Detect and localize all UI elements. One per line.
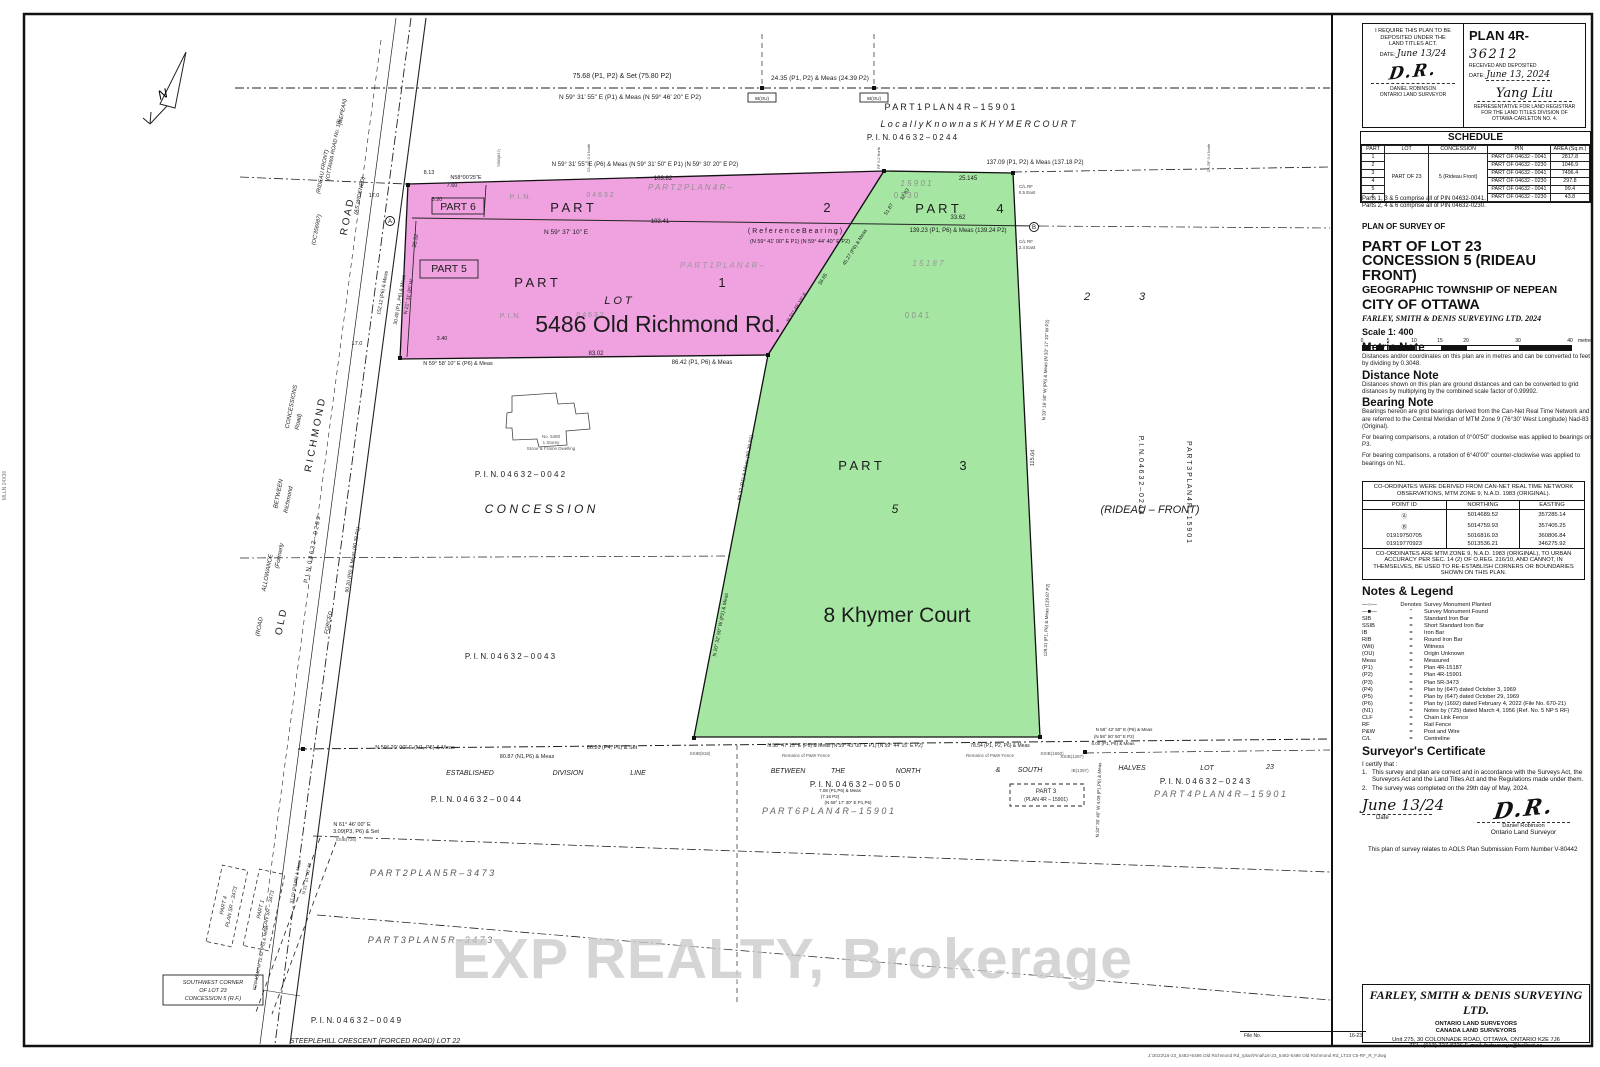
drawing-label: N 59° 37' 10" E (544, 228, 589, 236)
drawing-label: 75.68 (P1, P2) & Set (75.80 P2) (573, 73, 672, 80)
certificate-signer-title: Ontario Land Surveyor (1457, 829, 1590, 836)
legend-entry: (N1)=Notes by (725) dated March 4, 1956 … (1362, 708, 1594, 715)
drawing-label: P. I. N. (510, 194, 531, 201)
deposit-date-value: June 13/24 (1397, 49, 1446, 59)
drawing-label: HALVES (1118, 765, 1146, 772)
drawing-label: 0 4 6 3 2 (586, 192, 613, 199)
drawing-label: ALLOWANCE (261, 553, 274, 593)
legend-entry: —■—"Survey Monument Found (1362, 609, 1594, 616)
legend-entry: RIB=Round Iron Bar (1362, 637, 1594, 644)
coordinate-footer: CO-ORDINATES ARE MTM ZONE 9, N.A.D. 1983… (1363, 548, 1584, 579)
legend-block: Notes & Legend —○—DenotesSurvey Monument… (1362, 584, 1594, 743)
drawing-label: 7.08 (P1,P6) & Meas (819, 788, 862, 793)
drawing-label: 5 (892, 502, 899, 516)
rotated-part-box: PART 4PLAN 5R – 3473 (206, 865, 248, 947)
drawing-label: P A R T 1 P L A N 4 R – 1 5 9 0 1 (884, 102, 1015, 112)
coordinate-row: 019197507055016816.93360806.84 (1363, 532, 1584, 540)
surveyor-title: ONTARIO LAND SURVEYOR (1365, 92, 1461, 98)
legend-entry: IB=Iron Bar (1362, 630, 1594, 637)
drawing-label: OF LOT 23 (199, 988, 227, 994)
drawing-label: 33.62 (950, 215, 966, 221)
drawing-label: 3 (959, 458, 966, 473)
drawing-label: SSIB(918) (690, 751, 711, 756)
distance-note-title: Distance Note (1362, 373, 1592, 380)
received-date-label: DATE: (1469, 73, 1485, 79)
realty-watermark: EXP REALTY, Brokerage (452, 926, 1133, 992)
drawing-label: P. I. N. 0 4 6 3 2 – 0 2 8 9 (304, 515, 323, 583)
legend-entry: (OU)=Origin Unknown (1362, 651, 1594, 658)
drawing-label: RF 0.2 North (877, 147, 881, 169)
distance-note-body: Distances shown on this plan are ground … (1362, 381, 1592, 395)
legend-entry: C/L=Centreline (1362, 736, 1594, 743)
drawing-label: Richmond (283, 485, 294, 513)
drawing-label: N 32° 30' 40" W 4.09 (P1,P6) & Meas (1095, 762, 1103, 838)
drawing-label: N 59° 31' 55" E (P6) & Meas (N 59° 31' 5… (552, 162, 738, 168)
drawing-label: 8 Khymer Court (823, 604, 970, 627)
legend-entry: (Wit)=Witness (1362, 644, 1594, 651)
drawing-label: SOUTH (1018, 767, 1043, 774)
drawing-label: (N 58° 50' 50" E P2) (1094, 734, 1135, 739)
schedule-note: Parts 2, 4 & 6 comprise all of PIN 04632… (1362, 203, 1486, 210)
drawing-label: R O A D (339, 199, 357, 237)
drawing-label: 129.31 (P1, P6) & Meas (129.87 P2) (1043, 583, 1051, 656)
schedule-note: Parts 1, 3 & 5 comprise all of PIN 04632… (1362, 196, 1486, 203)
legend-entry: (P2)=Plan 4R-15901 (1362, 672, 1594, 679)
drawing-label: P A R T (514, 275, 558, 290)
drawing-label: P. I. N. 0 4 6 3 2 – 0 0 4 3 (465, 652, 556, 661)
registrar-signature: Yang Liu (1469, 86, 1580, 101)
drawing-label: Stone & Frame Dwelling (527, 446, 576, 451)
plan-number-prefix: PLAN 4R- (1469, 28, 1529, 43)
survey-monument (301, 747, 305, 751)
drawing-label: 23 (1265, 764, 1274, 771)
legend-entry: (P6)=Plan by (1692) dated February 4, 20… (1362, 701, 1594, 708)
drawing-label: 1 (718, 275, 725, 290)
file-path: J:\2023\16-23_5482+5486 Old Richmond Rd_… (1148, 1053, 1386, 1058)
drawing-label: 0.5 East (1019, 190, 1036, 195)
certificate-item: 1.This survey and plan are correct and i… (1362, 769, 1590, 784)
drawing-label: 2.4 East (1019, 245, 1036, 250)
drawing-label: 86.20 (P4, P6) & Set (587, 745, 638, 751)
plan-number-block: PLAN 4R- 36212 RECEIVED AND DEPOSITED DA… (1464, 24, 1585, 127)
drawing-label: 86.42 (P1, P6) & Meas (672, 360, 733, 366)
legend-entry: SSIB=Short Standard Iron Bar (1362, 623, 1594, 630)
drawing-label: 8.13 (424, 170, 435, 176)
drawing-label: 137.09 (P1, P2) & Meas (137.18 P2) (986, 160, 1083, 166)
certificate-item: 2.The survey was completed on the 29th d… (1362, 785, 1590, 792)
survey-monument (760, 86, 764, 90)
schedule-col-header: CONCESSION (1429, 146, 1488, 154)
drawing-label: P. I. N. 0 4 6 3 2 – 0 0 4 4 (431, 795, 522, 804)
drawing-label: PART 6 (440, 201, 476, 213)
deposit-block: I REQUIRE THIS PLAN TO BE DEPOSITED UNDE… (1362, 23, 1586, 128)
scale-label: Scale 1: 400 (1362, 327, 1588, 337)
drawing-label: P A R T 4 P L A N 4 R – 1 5 9 0 1 (1154, 789, 1286, 799)
drawing-label: Remains of P&W Fence (966, 753, 1015, 758)
drawing-label: 7.60 (447, 183, 458, 189)
schedule-table: SCHEDULE PARTLOTCONCESSIONPINAREA (Sq.m.… (1360, 131, 1591, 203)
deposit-line: DEPOSITED UNDER THE (1365, 35, 1461, 42)
legend-entry: —○—DenotesSurvey Monument Planted (1362, 602, 1594, 609)
drawing-label: IB(OU) (867, 96, 882, 101)
survey-monument (1038, 735, 1042, 739)
drawing-label: STEEPLEHILL CRESCENT (FORCED ROAD) LOT 2… (290, 1038, 460, 1045)
drawing-label: 3.09(P3, P6) & Set (333, 829, 379, 835)
company-subtitle: ONTARIO LAND SURVEYORS (1363, 1021, 1589, 1028)
drawing-label: 80.87 (N1,P6) & Meas (500, 754, 555, 760)
certificate-block: Surveyor's Certificate I certify that : … (1362, 744, 1590, 836)
drawing-label: N 33° 16' 50" W (P6) & Meas (N 33° 17' 1… (1041, 319, 1050, 420)
drawing-label: IB(1397) (1071, 768, 1089, 773)
drawing-label: FORCED (324, 611, 334, 635)
drawing-label: P. I. N. 0 4 6 3 2 – 0 0 4 2 (475, 470, 566, 479)
coordinate-header: CO-ORDINATES WERE DERIVED FROM CAN-NET R… (1363, 482, 1584, 501)
drawing-label: PART 5 (431, 263, 467, 275)
drawing-label: P. I. N. 0 4 6 3 2 – 0 2 4 4 (867, 133, 958, 142)
drawing-label: P A R T 1 P L A N 4 R – (680, 261, 764, 270)
drawing-label: 2 (823, 200, 830, 215)
drawing-label: 5.00 (P1, P6) & Meas (1091, 741, 1135, 746)
drawing-label: ESTABLISHED (446, 770, 494, 777)
drawing-label: P A R T 6 P L A N 4 R – 1 5 9 0 1 (762, 806, 894, 816)
boundary-line (1040, 226, 1330, 228)
drawing-label: SSIB(1287) (1060, 754, 1084, 759)
drawing-label: P A R T (915, 201, 959, 216)
drawing-label: 37.19 (P3,P6) & Meas (289, 859, 302, 904)
drawing-label: 3.40 (437, 336, 448, 342)
drawing-label: N20°16'40"W 12.62 (P6) & Meas (252, 924, 270, 990)
schedule-col-header: PIN (1488, 146, 1551, 154)
drawing-label: SSIB(726) (336, 837, 357, 842)
drawing-label: R I C H M O N D (303, 398, 328, 473)
north-arrow-icon: N (143, 52, 186, 124)
drawing-label: 2 (1083, 291, 1090, 303)
drawing-label: & (996, 767, 1001, 774)
drawing-label: IB(OU) (755, 96, 770, 101)
certificate-date-label: Date (1376, 815, 1457, 821)
plan-title-line: CITY OF OTTAWA (1362, 297, 1588, 312)
survey-monument (766, 353, 770, 357)
drawing-label: 115.04 (1030, 450, 1037, 467)
coordinate-row: Ⓑ5014759.93357405.25 (1363, 521, 1584, 532)
deposit-line: LAND TITLES ACT. (1365, 41, 1461, 48)
boundary-line (1013, 167, 1330, 172)
legend-entry: (P3)=Plan 5R-3473 (1362, 680, 1594, 687)
firm-line: FARLEY, SMITH & DENIS SURVEYING LTD. 202… (1362, 314, 1588, 323)
survey-monument (1011, 171, 1015, 175)
drawing-label: N 58° 47' 15" E (P6) & Meas (N 59° 43' 0… (767, 743, 923, 749)
drawing-label: 1 5 1 8 7 (912, 259, 944, 268)
drawing-label: (7.16 P2) (821, 794, 840, 799)
metric-note-body: Distances and/or coordinates on this pla… (1362, 353, 1592, 367)
registrar-line: OTTAWA-CARLETON NO. 4. (1469, 116, 1580, 122)
received-date-value: June 13, 2024 (1486, 70, 1549, 81)
drawing-label: 0 0 4 1 (905, 311, 930, 320)
drawing-label: Remains of P&W Fence (782, 753, 831, 758)
drawing-label: (N 59° 17' 30" E P1,P6) (824, 800, 872, 805)
drawing-label: Road) (295, 413, 304, 430)
bearing-note-p3: For bearing comparisons, a rotation of 6… (1362, 452, 1592, 466)
drawing-label: C/L RF (1019, 239, 1033, 244)
survey-monument (882, 169, 886, 173)
drawing-label: N 59° 31' 55" E (P1) & Meas (N 59° 46' 2… (559, 93, 701, 101)
file-number-value: 16-23 (1349, 1033, 1362, 1039)
schedule-col-header: AREA (Sq.m.) (1550, 146, 1589, 154)
boundary-line (313, 836, 1330, 872)
coordinate-col-header: EASTING (1520, 501, 1584, 510)
drawing-label: 103.82 (654, 176, 673, 182)
drawing-label: N58°00'25"E (450, 175, 482, 181)
drawing-label: BETWEEN (771, 768, 807, 775)
certificate-date-signature: June 13/24 (1362, 796, 1457, 814)
drawing-label: C/L RF 0.4 North (1207, 144, 1211, 173)
drawing-label: (OC'356987) (311, 214, 323, 246)
drawing-label: 90.20 (P6) & Meas (90.38 P1) (344, 526, 362, 593)
registrar-line: REPRESENTATIVE FOR LAND REGISTRAR (1469, 104, 1580, 110)
drawing-label: LOT (1200, 765, 1214, 772)
legend-entry: (P1)=Plan 4R-15187 (1362, 665, 1594, 672)
drawing-label: SOUTHWEST CORNER (183, 980, 244, 986)
company-subtitle: CANADA LAND SURVEYORS (1363, 1028, 1589, 1035)
schedule-row: 1PART OF 235 (Rideau Front)PART OF 04632… (1362, 154, 1590, 162)
plan-number-hand: 36212 (1469, 47, 1518, 62)
survey-monument (398, 356, 402, 360)
drawing-label: (N 59° 41' 00" E P1) (N 59° 44' 40" E P2… (750, 239, 850, 245)
drawing-label: DIVISION (553, 770, 585, 777)
drawing-label: N 59° 58' 10" E (P6) & Meas (423, 361, 493, 367)
drawing-label: 78.54 (P1, P2, P6) & Meas (970, 743, 1030, 749)
title-block: PLAN OF SURVEY OF PART OF LOT 23 CONCESS… (1362, 222, 1588, 354)
bearing-note-body: Bearings hereon are grid bearings derive… (1362, 408, 1592, 430)
drawing-label: PART 3 (1036, 789, 1057, 795)
drawing-label: (RIDEAU – FRONT) (1101, 504, 1200, 516)
drawing-label: 83.02 (588, 351, 604, 357)
legend-entry: SIB=Standard Iron Bar (1362, 616, 1594, 623)
certificate-signature: D.R. (1492, 793, 1555, 826)
drawing-label: P A R T (838, 458, 882, 473)
drawing-label: LINE (630, 770, 646, 777)
drawing-label: 5486 Old Richmond Rd. (535, 311, 780, 337)
boundary-line (272, 842, 336, 1014)
received-label: RECEIVED AND DEPOSITED (1469, 63, 1580, 69)
survey-monument (872, 86, 876, 90)
drawing-label: 17.0 (369, 193, 380, 199)
drawing-label: 25.145 (959, 176, 978, 182)
drawing-label: 1 5 9 0 1 (900, 179, 931, 188)
survey-monument (406, 183, 410, 187)
drawing-label: NORTH (896, 768, 922, 775)
drawing-label: P. I. N. 0 4 6 3 2 – 0 2 4 3 (1160, 777, 1251, 786)
coordinate-col-header: NORTHING (1446, 501, 1519, 510)
bearing-note-p2: For bearing comparisons, a rotation of 0… (1362, 434, 1592, 448)
drawing-label: ( R e f e r e n c e B e a r i n g ) (748, 228, 842, 235)
drawing-label: P A R T 2 P L A N 5 R – 3 4 7 3 (370, 868, 494, 878)
bearing-note-title: Bearing Note (1362, 400, 1592, 407)
legend-entry: CLF=Chain Link Fence (1362, 715, 1594, 722)
drawing-label: N 58° 42' 50" E (P6) & Meas (1096, 727, 1154, 732)
drawing-label: 139.23 (P1, P6) & Meas (139.24 P2) (909, 228, 1006, 234)
drawing-label: 1 Storey (543, 440, 561, 445)
drawing-label: BETWEEN (273, 478, 285, 509)
drawing-label: P A R T (550, 200, 594, 215)
surveyor-signature: D.R. (1388, 60, 1439, 85)
drawing-label: (Formerly (275, 542, 286, 569)
legend-entry: (P5)=Plan by (647) dated October 29, 196… (1362, 694, 1594, 701)
coordinate-row: Ⓐ5014689.52357285.14 (1363, 509, 1584, 521)
notes-block: Metric Note Distances and/or coordinates… (1362, 340, 1592, 471)
control-point-label: B (1032, 225, 1036, 231)
drawing-label: N 61° 46' 00" E (333, 822, 371, 828)
schedule-notes: Parts 1, 3 & 5 comprise all of PIN 04632… (1362, 196, 1486, 211)
legend-entry: (P4)=Plan by (647) dated October 3, 1969 (1362, 687, 1594, 694)
legend-entry: P&W=Post and Wire (1362, 729, 1594, 736)
drawing-label: 24.35 (P1, P2) & Meas (24.39 P2) (771, 75, 869, 82)
drawing-label: P. I. N. (500, 313, 521, 320)
drawing-label: CONCESSION 5 (R.F.) (185, 996, 242, 1002)
schedule-col-header: PART (1362, 146, 1385, 154)
schedule-title: SCHEDULE (1361, 132, 1590, 145)
registrar-line: FOR THE LAND TITLES DIVISION OF (1469, 110, 1580, 116)
legend-title: Notes & Legend (1362, 584, 1594, 598)
drawing-label: P A R T 3 P L A N 4 R – 1 5 9 0 1 (1185, 441, 1192, 543)
certificate-title: Surveyor's Certificate (1362, 744, 1590, 758)
drawing-label: N 59° 20' 00" E (N1, P6) & Meas (375, 745, 455, 751)
deposit-date-label: DATE: (1380, 52, 1396, 58)
drawing-label: P. I. N. 0 4 6 3 2 – 0 2 4 4 (1137, 436, 1144, 515)
drawing-label: L O T (604, 295, 633, 307)
company-block: FARLEY, SMITH & DENIS SURVEYING LTD. ONT… (1362, 984, 1590, 1043)
aols-line: This plan of survey relates to AOLS Plan… (1368, 846, 1577, 853)
survey-monument (692, 736, 696, 740)
coordinate-table: CO-ORDINATES WERE DERIVED FROM CAN-NET R… (1362, 481, 1585, 580)
schedule-col-header: LOT (1385, 146, 1429, 154)
drawing-label: P A R T 2 P L A N 4 R – (648, 183, 732, 192)
drawing-label: 17.0 (352, 341, 363, 347)
drawing-label: 4 (996, 201, 1003, 216)
drawing-label: 3 (1139, 291, 1146, 303)
company-name: FARLEY, SMITH & DENIS SURVEYING LTD. (1363, 988, 1589, 1018)
certificate-intro: I certify that : (1362, 761, 1590, 768)
legend-entry: RF=Rail Fence (1362, 722, 1594, 729)
control-point-label: A (388, 219, 392, 225)
plan-kicker: PLAN OF SURVEY OF (1362, 222, 1588, 231)
legend-entry: Meas=Measured (1362, 658, 1594, 665)
file-number-strip: File No. 16-23 (1240, 1031, 1366, 1039)
coordinate-col-header: POINT ID (1363, 501, 1446, 510)
plan-title-line: CONCESSION 5 (RIDEAU FRONT) (1362, 254, 1588, 284)
drawing-label: (PLAN 4R – 15901) (1024, 797, 1068, 803)
drawing-label: O L D (274, 609, 290, 636)
metric-note-title: Metric Note (1362, 345, 1592, 352)
deposit-line: I REQUIRE THIS PLAN TO BE (1365, 28, 1461, 35)
plan-title-line: PART OF LOT 23 (1362, 239, 1588, 254)
drawing-label: No. 5480 (542, 434, 561, 439)
drawing-label: (OTTAWA ROAD No. 10) (325, 119, 343, 181)
drawing-label: 102.41 (651, 219, 670, 225)
file-number-label: File No. (1244, 1033, 1261, 1039)
drawing-label: C/L RF (1019, 184, 1033, 189)
company-contact: TEL. (613) 727-8226 E-mail: fsdsurveys@b… (1363, 1043, 1589, 1049)
deposit-statement: I REQUIRE THIS PLAN TO BE DEPOSITED UNDE… (1363, 24, 1464, 127)
drawing-label: (ROAD (255, 616, 265, 637)
drawing-label: C O N C E S S I O N (485, 502, 596, 516)
drawing-label: SSIB(847) (497, 149, 501, 167)
drawing-label: P. I. N. 0 4 6 3 2 – 0 0 4 9 (311, 1016, 402, 1025)
drawing-label: L o c a l l y K n o w n a s K H Y M E R … (880, 119, 1077, 129)
survey-plan-sheet: N PART 4PLAN 5R – 3473PART 1PLAN 5R – 34… (0, 0, 1600, 1067)
coordinate-row: 019197709235013536.21346275.92 (1363, 540, 1584, 548)
drawing-label: THE (831, 768, 845, 775)
boundary-line (1085, 750, 1330, 753)
margin-note: MLLN 24X36 (2, 471, 8, 500)
boundary-line (263, 990, 300, 996)
